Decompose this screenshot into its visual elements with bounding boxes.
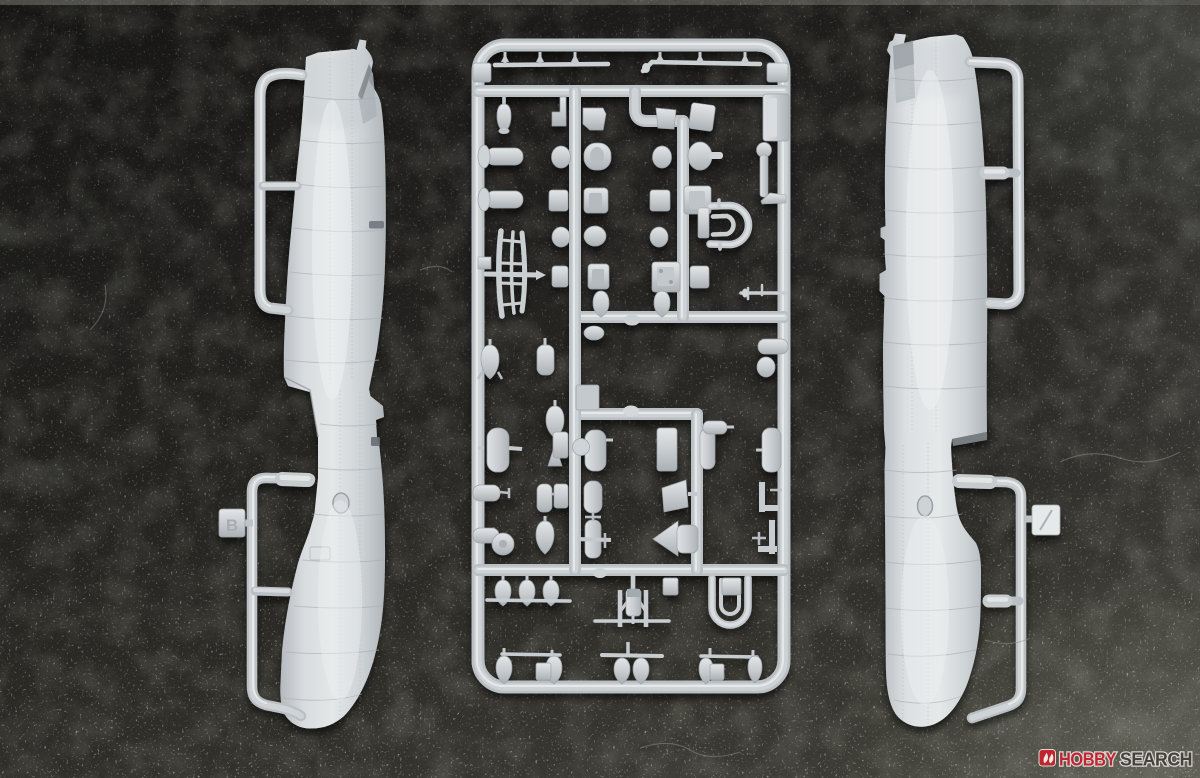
svg-text:HOBBY: HOBBY (1059, 749, 1117, 770)
svg-text:SEARCH: SEARCH (1120, 749, 1192, 770)
svg-text:B: B (226, 516, 238, 535)
